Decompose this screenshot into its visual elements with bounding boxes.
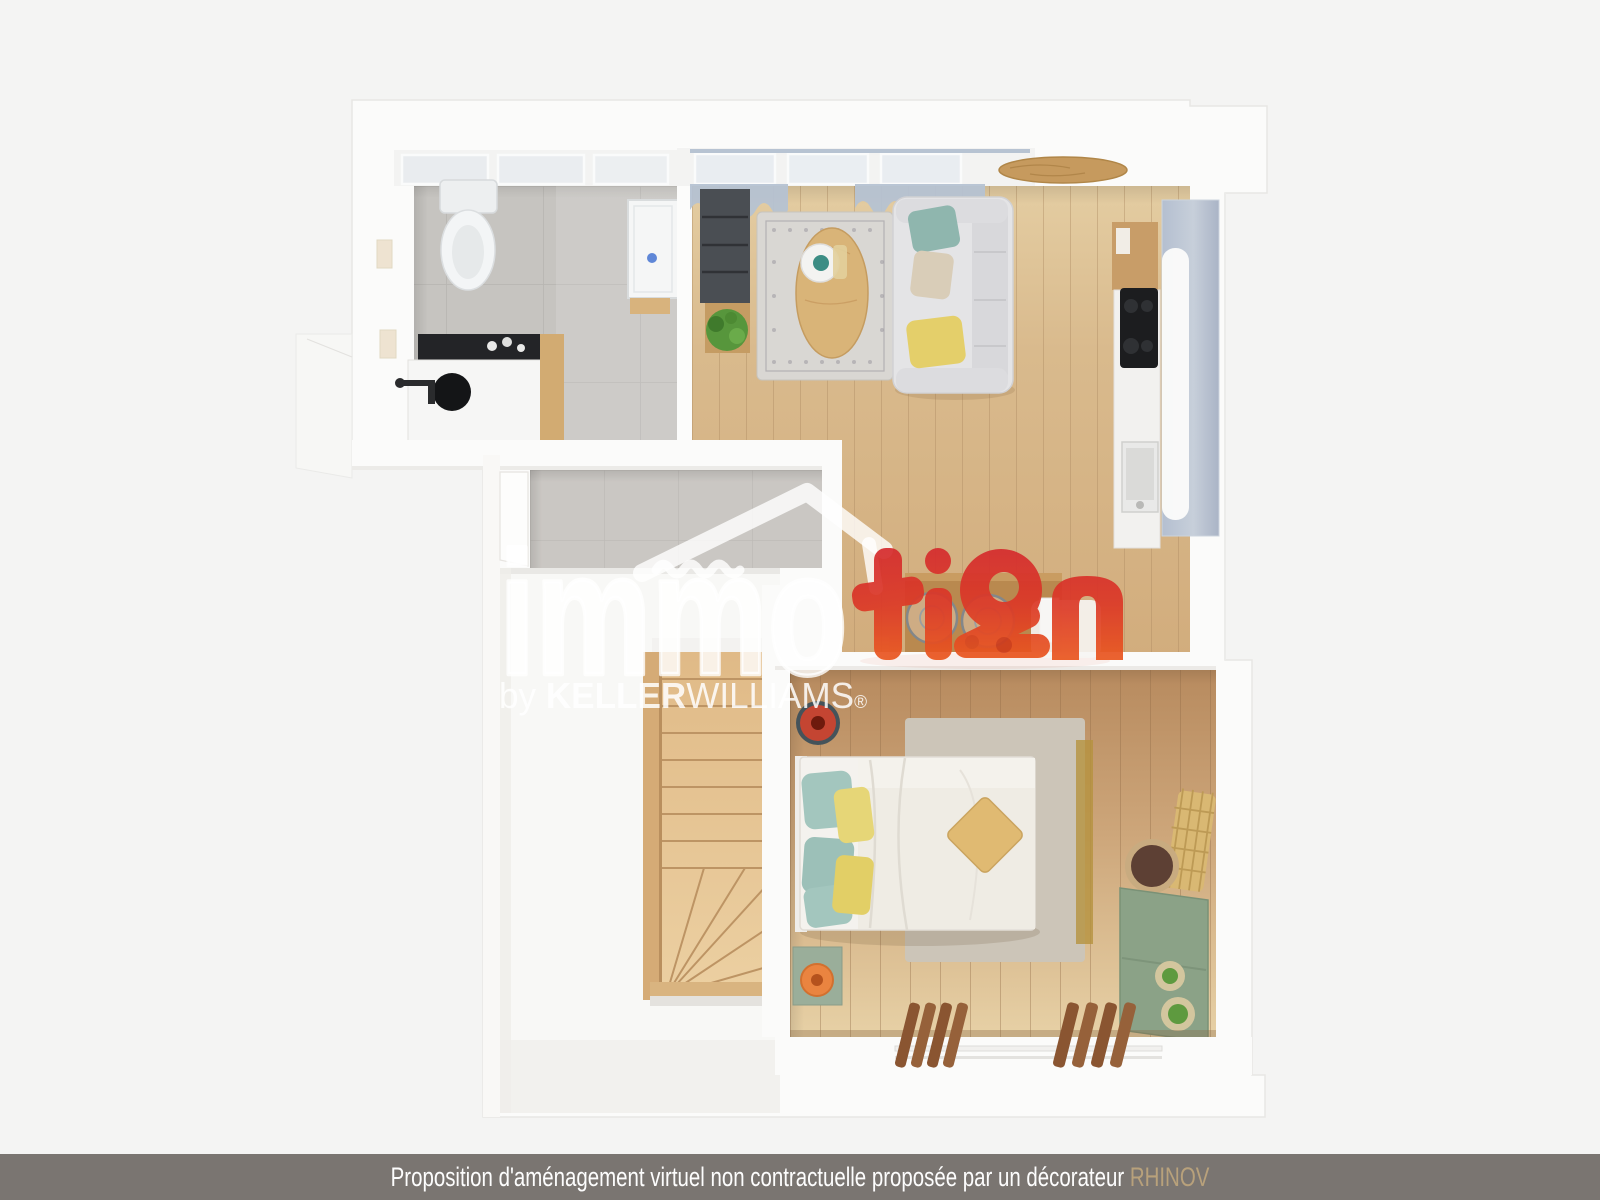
svg-text:Proposition d'aménagement virt: Proposition d'aménagement virtuel non co… [391,1164,1210,1193]
svg-text:by KELLERWILLIAMS®: by KELLERWILLIAMS® [499,675,867,716]
